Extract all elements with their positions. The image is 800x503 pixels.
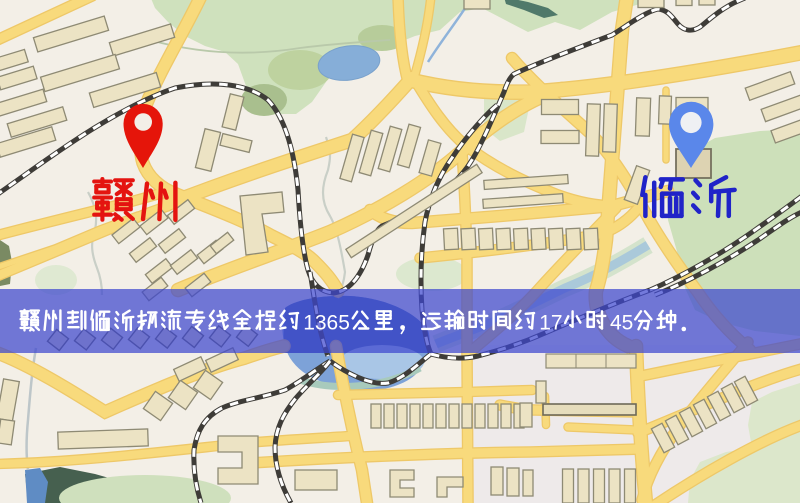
svg-text:45: 45 <box>610 312 633 335</box>
svg-text:17: 17 <box>539 312 562 335</box>
svg-text:1365: 1365 <box>303 312 350 335</box>
